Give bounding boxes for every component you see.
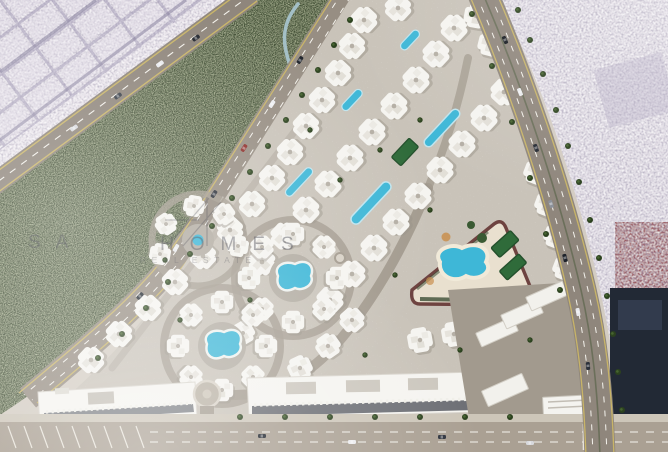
masterplan-screenshot: SA HOMES REAL ESTATE bbox=[0, 0, 668, 452]
haze-overlay-topright bbox=[0, 0, 668, 452]
masterplan-aerial-render: SA HOMES REAL ESTATE bbox=[0, 0, 668, 452]
